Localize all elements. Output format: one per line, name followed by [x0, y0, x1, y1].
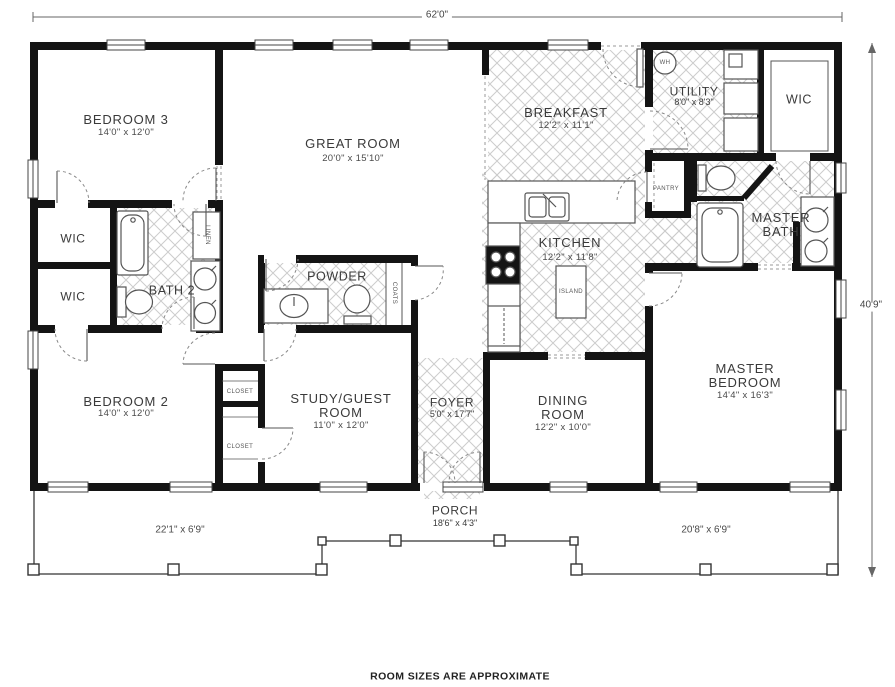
linen-label: LINEN	[204, 225, 210, 245]
room-label-wic-master: WIC	[786, 93, 812, 107]
master-toilet-icon	[698, 165, 735, 191]
window-bottom-1	[48, 482, 88, 492]
window-bottom-2	[170, 482, 212, 492]
room-label-kitchen: KITCHEN	[539, 236, 602, 250]
room-label-foyer: FOYER	[430, 397, 474, 410]
room-label-powder: POWDER	[307, 270, 367, 284]
kitchen-sink-icon	[525, 193, 569, 221]
porch-left-dimension: 22'1" x 6'9"	[155, 526, 204, 537]
coats-label: COATS	[391, 282, 397, 304]
washer-icon	[724, 50, 758, 79]
tile-floor-hatch	[116, 49, 835, 499]
window-bottom-6	[660, 482, 697, 492]
room-size-dining: 12'2" x 10'0"	[535, 423, 591, 433]
room-size-porch: 18'6" x 4'3"	[433, 519, 477, 529]
room-label-great-room: GREAT ROOM	[305, 137, 401, 151]
overall-width-dimension: 62'0"	[422, 11, 452, 22]
room-size-utility: 8'0" x 8'3"	[674, 98, 713, 108]
room-label-master-bedroom: MASTER BEDROOM	[698, 362, 793, 390]
room-label-dining: DINING ROOM	[531, 394, 595, 422]
room-size-breakfast: 12'2" x 11'1"	[538, 121, 593, 131]
window-top-3	[333, 40, 372, 50]
rear-door-leaf	[637, 49, 643, 87]
room-size-great-room: 20'0" x 15'10"	[322, 154, 384, 164]
master-bathtub-icon	[697, 203, 743, 267]
room-label-wic-b3: WIC	[60, 233, 85, 246]
range-icon	[486, 246, 520, 284]
vanity-double-sink	[191, 261, 220, 331]
window-top-4	[410, 40, 448, 50]
powder-vanity	[264, 289, 328, 323]
window-right-3	[836, 390, 846, 430]
window-right-1	[836, 163, 846, 193]
island-label: ISLAND	[559, 289, 583, 295]
window-bottom-7	[790, 482, 830, 492]
floor-plan: 62'0" 40'9" BEDROOM 3 14'0" x 12'0" GREA…	[0, 0, 895, 687]
closet-upper-label: CLOSET	[227, 389, 253, 395]
room-label-porch: PORCH	[432, 505, 478, 518]
window-left-2	[28, 331, 38, 369]
window-top-1	[107, 40, 145, 50]
overall-height-dimension: 40'9"	[856, 301, 886, 312]
footer-note: ROOM SIZES ARE APPROXIMATE	[370, 671, 550, 682]
room-label-bath2: BATH 2	[149, 284, 195, 298]
room-label-wic-b2: WIC	[60, 291, 85, 304]
porch-right-dimension: 20'8" x 6'9"	[681, 526, 730, 537]
window-left-1	[28, 160, 38, 198]
window-bottom-3	[320, 482, 367, 492]
freezer-icon	[724, 118, 758, 151]
room-size-kitchen: 12'2" x 11'8"	[542, 253, 597, 263]
floor-plan-drawing	[0, 0, 895, 687]
window-right-2	[836, 280, 846, 318]
room-label-breakfast: BREAKFAST	[524, 106, 608, 120]
room-size-master-bedroom: 14'4" x 16'3"	[717, 391, 773, 401]
closet-lower-label: CLOSET	[227, 444, 253, 450]
bathtub-icon	[117, 211, 148, 275]
window-top-2	[255, 40, 293, 50]
room-label-study: STUDY/GUEST ROOM	[287, 392, 395, 420]
room-size-bedroom3: 14'0" x 12'0"	[98, 128, 154, 138]
room-label-master-bath: MASTER BATH	[745, 211, 817, 239]
water-heater-label: WH	[660, 60, 671, 66]
room-size-foyer: 5'0" x 17'7"	[430, 410, 474, 420]
pantry-label: PANTRY	[653, 186, 679, 192]
window-bottom-4	[443, 482, 483, 492]
powder-toilet	[344, 285, 371, 324]
room-label-bedroom3: BEDROOM 3	[83, 113, 168, 127]
window-top-5	[548, 40, 588, 50]
dryer-icon	[724, 83, 758, 114]
room-size-bedroom2: 14'0" x 12'0"	[98, 409, 154, 419]
window-bottom-5	[550, 482, 587, 492]
room-size-study: 11'0" x 12'0"	[313, 421, 368, 431]
